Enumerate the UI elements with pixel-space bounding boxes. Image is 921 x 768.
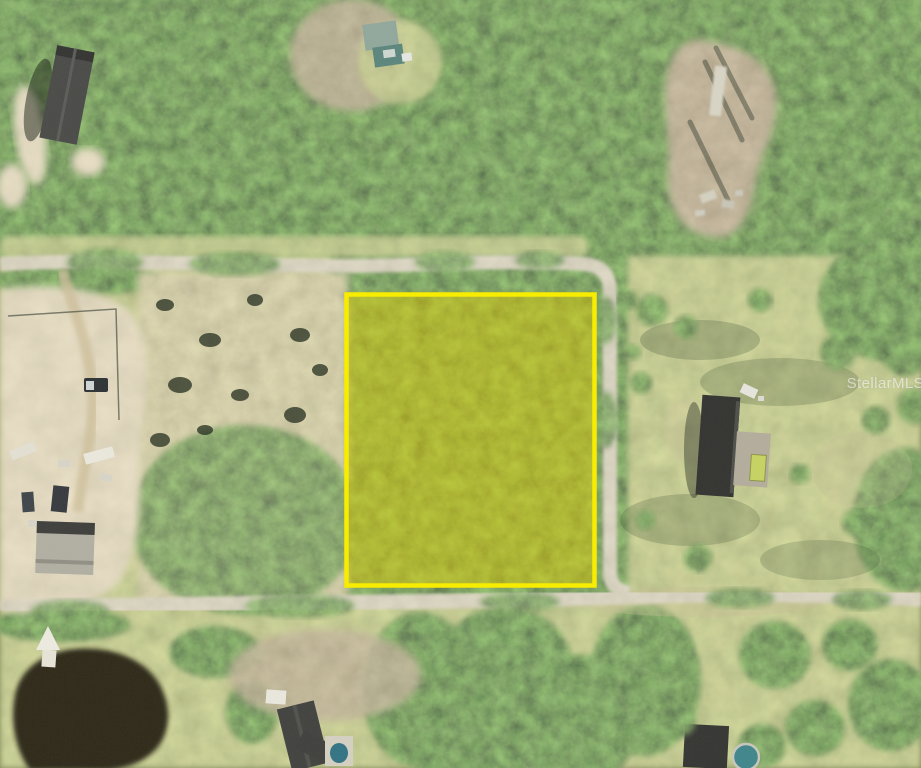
satellite-map <box>0 0 921 768</box>
parcel-fill <box>347 295 595 586</box>
parcel-highlight <box>347 295 595 586</box>
aerial-photo: StellarMLS <box>0 0 921 768</box>
